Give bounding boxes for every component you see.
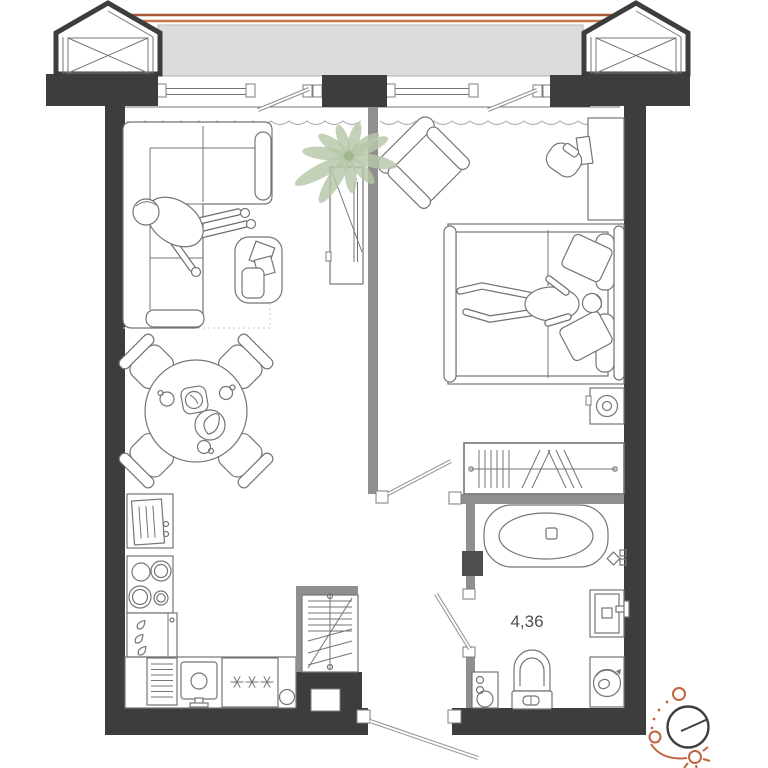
floor-plan: 4,36 xyxy=(0,0,768,768)
toilet-tank xyxy=(512,691,552,709)
window-pier-right xyxy=(550,75,590,107)
cooktop xyxy=(127,556,173,613)
balcony-floor xyxy=(158,25,583,76)
bathroom-wall-pier xyxy=(462,551,483,576)
wall-bottom-left xyxy=(105,708,368,735)
decor-tray xyxy=(242,268,264,298)
bedroom-balcony-door xyxy=(488,85,552,110)
floor-plan-page: 4,36 xyxy=(0,0,768,768)
living-room xyxy=(117,122,363,490)
compass-needle xyxy=(688,719,708,728)
kitchen xyxy=(125,494,296,708)
bathroom-door xyxy=(436,594,470,649)
bay-window-left xyxy=(46,3,160,106)
desk xyxy=(576,118,624,220)
bathroom-top-wall xyxy=(452,494,624,504)
oven-unit xyxy=(127,494,173,548)
coffee-table xyxy=(235,237,282,303)
fridge-freezer xyxy=(222,658,278,707)
shaft-niche xyxy=(311,689,340,711)
kitchen-counter xyxy=(125,657,296,708)
living-balcony-door xyxy=(258,85,322,110)
wall-right xyxy=(624,75,646,735)
washbasin xyxy=(590,590,629,637)
toilet xyxy=(512,650,552,709)
bathtub xyxy=(484,505,626,567)
balcony xyxy=(128,15,612,76)
window-pier-center xyxy=(322,75,387,107)
living-window xyxy=(157,84,255,97)
dishwasher xyxy=(127,613,177,657)
person-head xyxy=(583,294,602,313)
vent-shaft xyxy=(296,586,358,672)
kitchen-sink xyxy=(181,662,217,707)
stool xyxy=(280,690,295,705)
partition-walls xyxy=(357,107,624,723)
bathroom-area-label: 4,36 xyxy=(510,612,543,631)
dining-set xyxy=(117,332,275,490)
water-heater xyxy=(472,672,498,708)
headboard xyxy=(614,226,624,380)
person-head xyxy=(133,199,159,225)
bedroom xyxy=(374,113,624,494)
bedroom-door xyxy=(388,461,451,494)
wall-left xyxy=(105,75,125,735)
bedroom-window xyxy=(386,84,478,97)
drying-rack xyxy=(147,658,177,705)
wall-bottom-right xyxy=(452,708,646,735)
compass-icon xyxy=(650,688,711,768)
bathroom: 4,36 xyxy=(472,505,629,709)
wardrobe xyxy=(464,443,624,494)
footboard xyxy=(444,226,456,382)
washing-machine xyxy=(590,657,624,707)
speaker-unit xyxy=(586,388,624,424)
